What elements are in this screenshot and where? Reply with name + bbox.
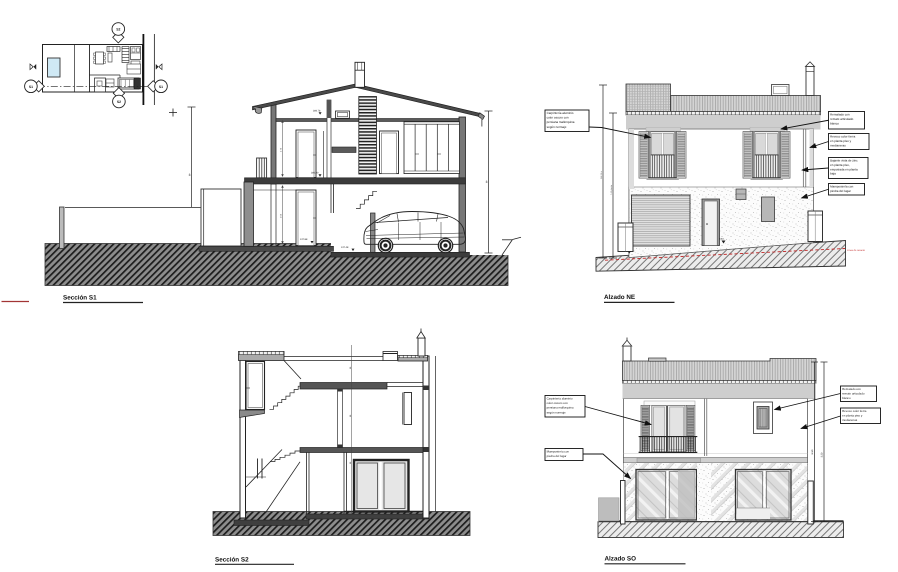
svg-text:remate articulado: remate articulado: [842, 391, 865, 395]
svg-text:persiana mallorquina: persiana mallorquina: [547, 120, 575, 124]
svg-text:248.1: 248.1: [719, 238, 725, 241]
svg-text:piedra del lugar: piedra del lugar: [547, 454, 567, 458]
svg-text:Revoco color tierra: Revoco color tierra: [842, 409, 867, 413]
svg-text:en planta piso y: en planta piso y: [830, 139, 852, 143]
svg-text:empotrada en planta: empotrada en planta: [830, 167, 858, 171]
svg-text:Mampostería con: Mampostería con: [547, 450, 570, 454]
svg-text:en planta piso y: en planta piso y: [842, 413, 863, 417]
svg-text:baja: baja: [830, 172, 836, 176]
svg-text:según normaje: según normaje: [547, 410, 567, 414]
svg-text:Bajante vista de zinc: Bajante vista de zinc: [830, 159, 858, 163]
svg-text:Rematado con: Rematado con: [842, 387, 861, 391]
svg-text:Revoco color tierra: Revoco color tierra: [830, 135, 856, 139]
svg-text:3.20: 3.20: [821, 452, 824, 457]
svg-text:S1: S1: [29, 85, 33, 89]
svg-text:306.00: 306.00: [311, 172, 319, 175]
svg-text:346.50 m: 346.50 m: [600, 170, 603, 179]
svg-text:blanco: blanco: [842, 396, 851, 400]
svg-text:medianeras: medianeras: [842, 418, 858, 422]
svg-text:Carpintería aluminio: Carpintería aluminio: [547, 397, 573, 401]
svg-text:S2: S2: [117, 100, 121, 104]
svg-text:según normaje: según normaje: [547, 125, 567, 129]
svg-text:color oscuro con: color oscuro con: [547, 116, 569, 120]
svg-text:308.78: 308.78: [313, 109, 321, 112]
svg-text:persiana mallorquina: persiana mallorquina: [547, 406, 574, 410]
svg-text:Sección S2: Sección S2: [215, 556, 249, 563]
svg-text:S1: S1: [159, 85, 163, 89]
svg-text:Línea de rasante: Línea de rasante: [847, 249, 866, 252]
svg-text:3: 3: [189, 173, 191, 177]
svg-text:S2: S2: [116, 28, 120, 32]
svg-text:3: 3: [486, 180, 488, 184]
svg-text:blanco: blanco: [830, 121, 839, 125]
svg-text:en planta piso,: en planta piso,: [830, 163, 850, 167]
svg-text:Mampostería con: Mampostería con: [830, 185, 854, 189]
svg-text:7.65 planta: 7.65 planta: [610, 184, 613, 195]
svg-text:6.50: 6.50: [811, 449, 814, 454]
svg-text:Sección S1: Sección S1: [63, 294, 97, 301]
svg-text:247.48: 247.48: [341, 246, 349, 249]
svg-text:color oscuro con: color oscuro con: [547, 401, 569, 405]
svg-text:Alzado NE: Alzado NE: [604, 294, 635, 301]
svg-text:piedra del lugar: piedra del lugar: [830, 189, 851, 193]
svg-text:Alzado SO: Alzado SO: [605, 556, 637, 563]
svg-text:medianeras: medianeras: [830, 143, 846, 147]
svg-text:247.88: 247.88: [300, 238, 308, 241]
svg-text:remate articulado: remate articulado: [830, 117, 854, 121]
svg-text:Rematado con: Rematado con: [830, 113, 850, 117]
svg-text:Carpintería aluminio: Carpintería aluminio: [547, 111, 574, 115]
